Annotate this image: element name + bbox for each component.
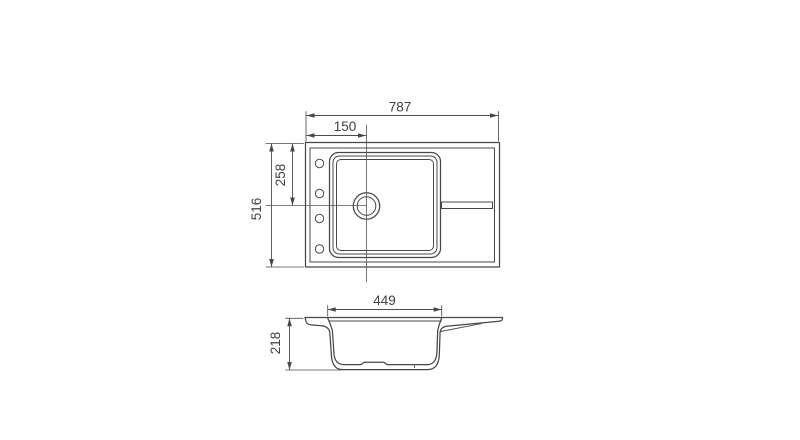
outer-shell-profile xyxy=(305,318,498,370)
top-view: 787 150 516 258 xyxy=(249,100,500,283)
side-view: 449 218 xyxy=(268,293,503,370)
drainboard-groove xyxy=(442,202,493,209)
dim-drain-offset-left-label: 150 xyxy=(334,119,357,134)
bowl-inner-profile xyxy=(328,318,442,365)
bowl-outer-edge xyxy=(330,153,441,258)
dim-bowl-width-label: 449 xyxy=(373,293,396,308)
tap-hole-3 xyxy=(315,214,323,222)
sink-technical-drawing-page: 787 150 516 258 xyxy=(0,0,800,440)
dim-drain-offset-top-label: 258 xyxy=(273,164,288,187)
sink-technical-drawing: 787 150 516 258 xyxy=(0,0,800,440)
dim-bowl-width: 449 xyxy=(328,293,442,316)
tap-hole-4 xyxy=(315,245,323,253)
sink-inner-rim xyxy=(310,148,495,262)
sink-outer-edge xyxy=(306,143,500,268)
dim-drain-offset-top: 258 xyxy=(273,144,293,206)
dim-drain-offset-left: 150 xyxy=(307,119,367,136)
bowl-mid-edge xyxy=(333,156,437,254)
bowl-inner-edge xyxy=(337,160,434,251)
dim-bowl-depth-label: 218 xyxy=(268,332,283,355)
tap-hole-2 xyxy=(315,189,323,197)
dim-overall-width-label: 787 xyxy=(389,100,412,115)
tap-hole-1 xyxy=(315,159,323,167)
dim-overall-depth-label: 516 xyxy=(249,198,264,221)
